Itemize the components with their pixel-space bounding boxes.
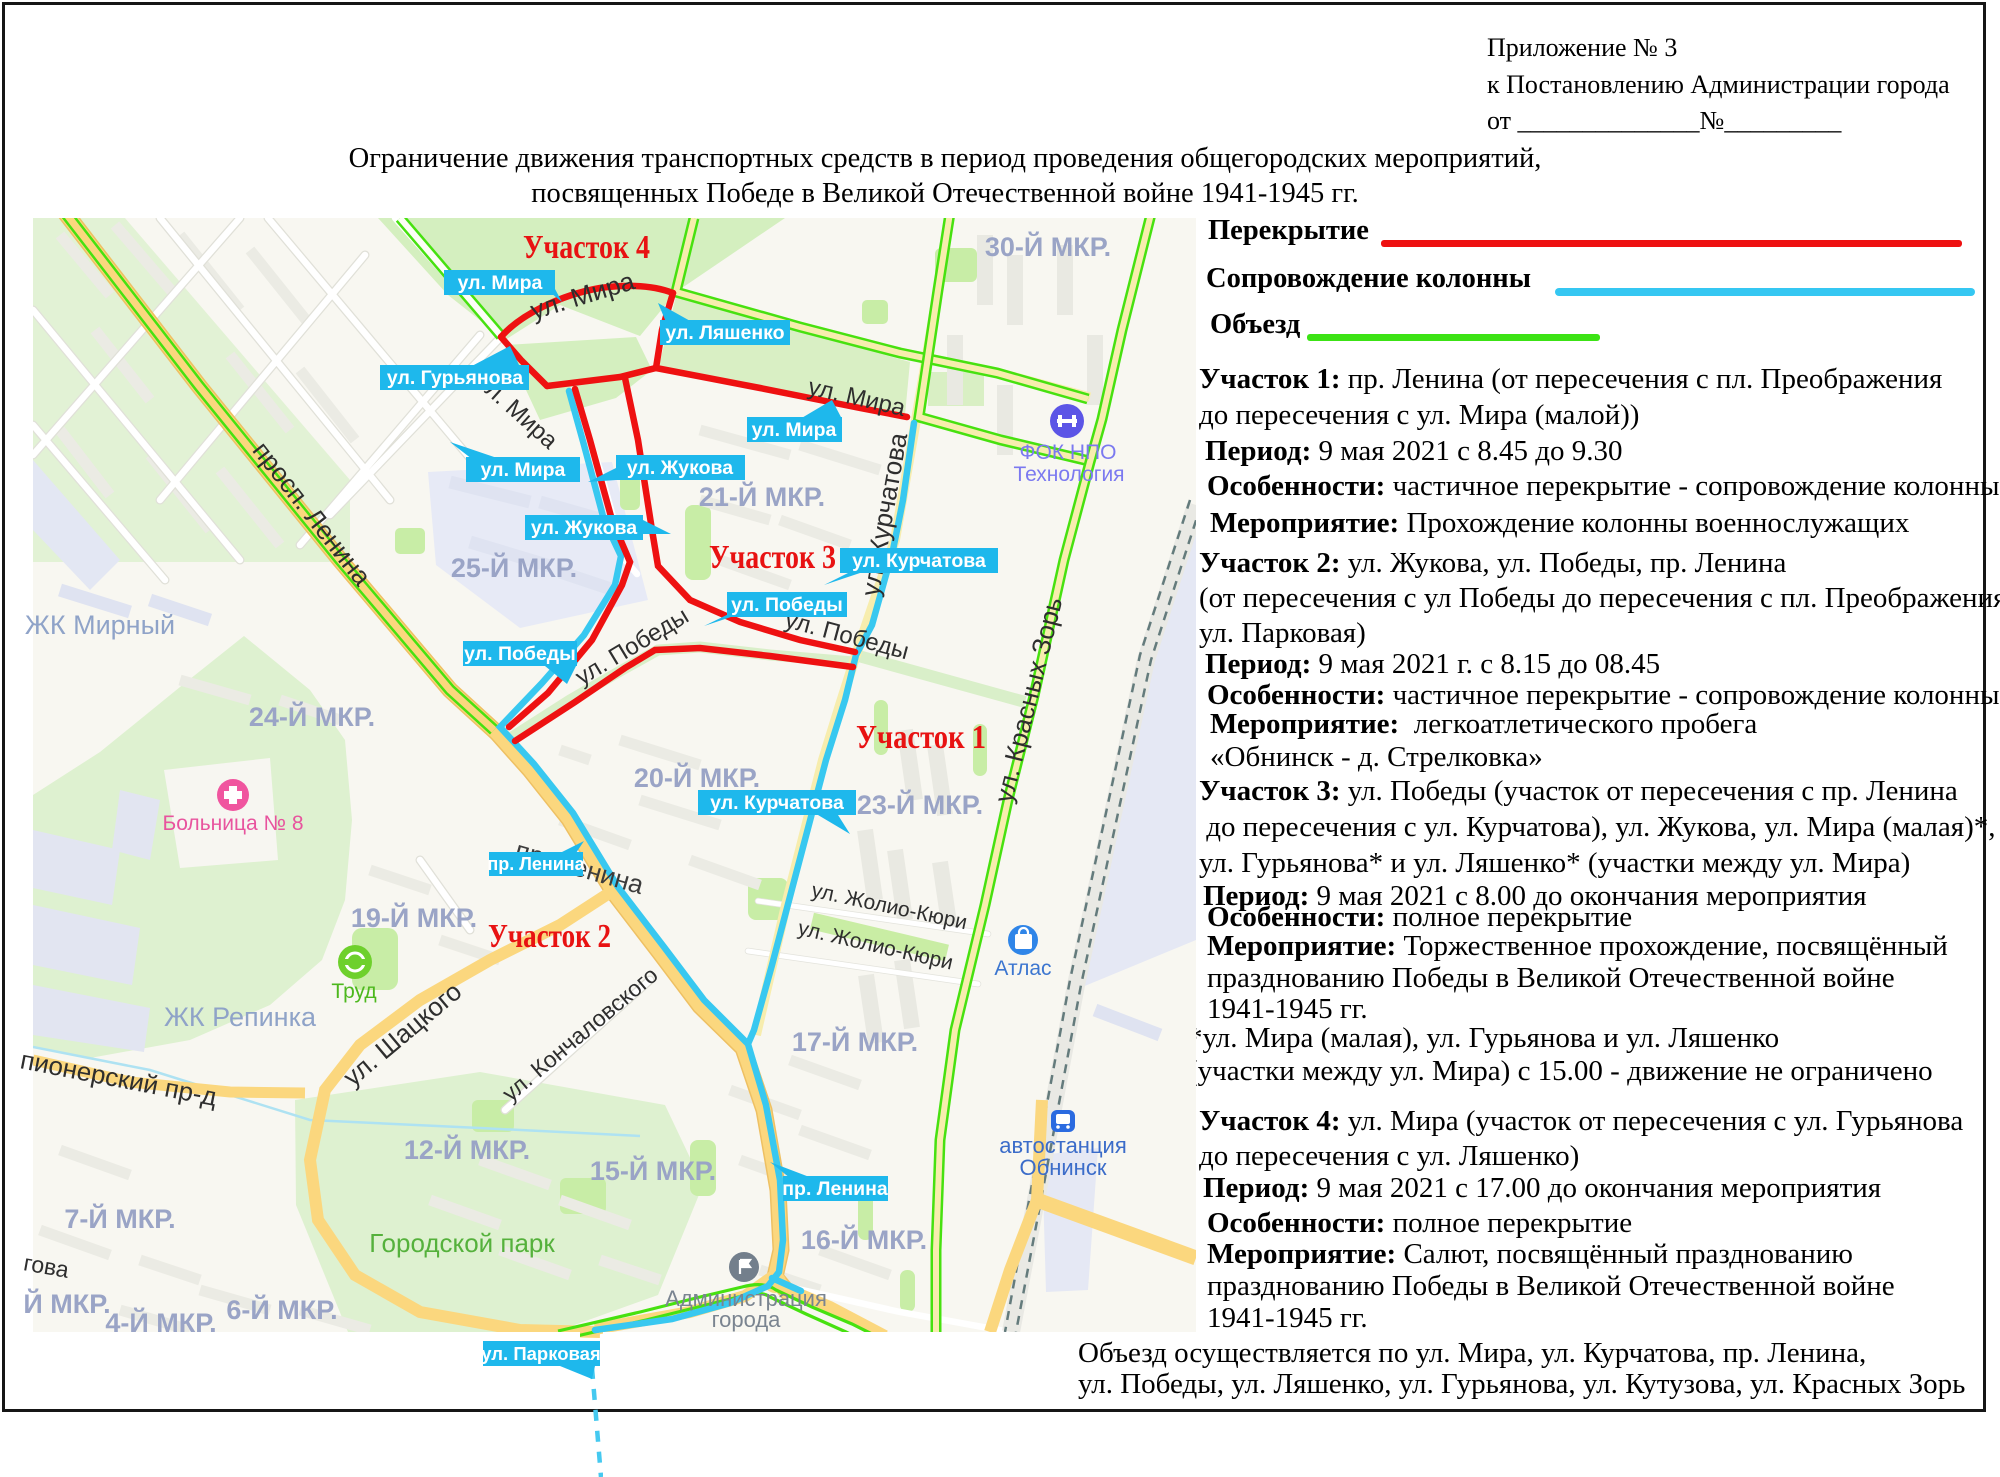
- svg-text:ФОК НПО: ФОК НПО: [1020, 441, 1117, 464]
- svg-text:Труд: Труд: [331, 980, 376, 1003]
- svg-text:Обнинск: Обнинск: [1020, 1155, 1107, 1180]
- svg-text:ул. Жукова: ул. Жукова: [627, 457, 733, 479]
- svg-text:Технология: Технология: [1013, 463, 1124, 486]
- svg-text:ул. Победы: ул. Победы: [731, 594, 843, 616]
- svg-text:ЖК Репинка: ЖК Репинка: [164, 1002, 317, 1032]
- svg-text:ул. Мира: ул. Мира: [458, 272, 543, 294]
- svg-text:6-Й МКР.: 6-Й МКР.: [226, 1294, 337, 1325]
- svg-text:Участок 1: Участок 1: [856, 719, 986, 756]
- svg-text:12-Й МКР.: 12-Й МКР.: [404, 1134, 530, 1165]
- svg-text:19-Й МКР.: 19-Й МКР.: [351, 902, 477, 933]
- svg-text:пр. Ленина: пр. Ленина: [782, 1178, 888, 1200]
- svg-text:Участок 4: Участок 4: [523, 229, 650, 266]
- svg-text:30-Й МКР.: 30-Й МКР.: [985, 231, 1111, 262]
- svg-text:ул. Курчатова: ул. Курчатова: [852, 550, 986, 572]
- svg-text:Атлас: Атлас: [994, 957, 1051, 980]
- svg-text:ЖК Мирный: ЖК Мирный: [25, 610, 175, 640]
- svg-text:17-Й МКР.: 17-Й МКР.: [792, 1026, 918, 1057]
- svg-text:24-Й МКР.: 24-Й МКР.: [249, 701, 375, 732]
- svg-text:15-Й МКР.: 15-Й МКР.: [590, 1155, 716, 1186]
- svg-text:ул. Гурьянова: ул. Гурьянова: [387, 367, 523, 389]
- svg-text:25-Й МКР.: 25-Й МКР.: [451, 552, 577, 583]
- svg-text:7-Й МКР.: 7-Й МКР.: [64, 1203, 175, 1234]
- svg-text:ул. Победы: ул. Победы: [464, 643, 576, 665]
- svg-text:16-Й МКР.: 16-Й МКР.: [801, 1224, 927, 1255]
- svg-text:города: города: [712, 1307, 782, 1332]
- svg-text:ул. Мира: ул. Мира: [752, 419, 837, 441]
- svg-text:Участок 3: Участок 3: [709, 539, 836, 576]
- svg-text:ул. Парковая: ул. Парковая: [481, 1343, 601, 1364]
- svg-text:ул. Курчатова: ул. Курчатова: [710, 792, 844, 814]
- svg-text:21-Й МКР.: 21-Й МКР.: [699, 481, 825, 512]
- svg-text:ул. Жукова: ул. Жукова: [531, 517, 637, 539]
- svg-text:ул. Мира: ул. Мира: [481, 459, 566, 481]
- svg-text:ул. Ляшенко: ул. Ляшенко: [665, 322, 784, 344]
- svg-text:Й МКР.: Й МКР.: [23, 1288, 110, 1319]
- svg-text:пр. Ленина: пр. Ленина: [487, 854, 585, 874]
- svg-text:23-Й МКР.: 23-Й МКР.: [857, 789, 983, 820]
- svg-text:4-Й МКР.: 4-Й МКР.: [105, 1307, 216, 1338]
- svg-text:20-Й МКР.: 20-Й МКР.: [634, 762, 760, 793]
- svg-text:Больница № 8: Больница № 8: [162, 812, 303, 835]
- svg-text:Участок 2: Участок 2: [488, 918, 611, 955]
- svg-text:Городской парк: Городской парк: [369, 1228, 555, 1258]
